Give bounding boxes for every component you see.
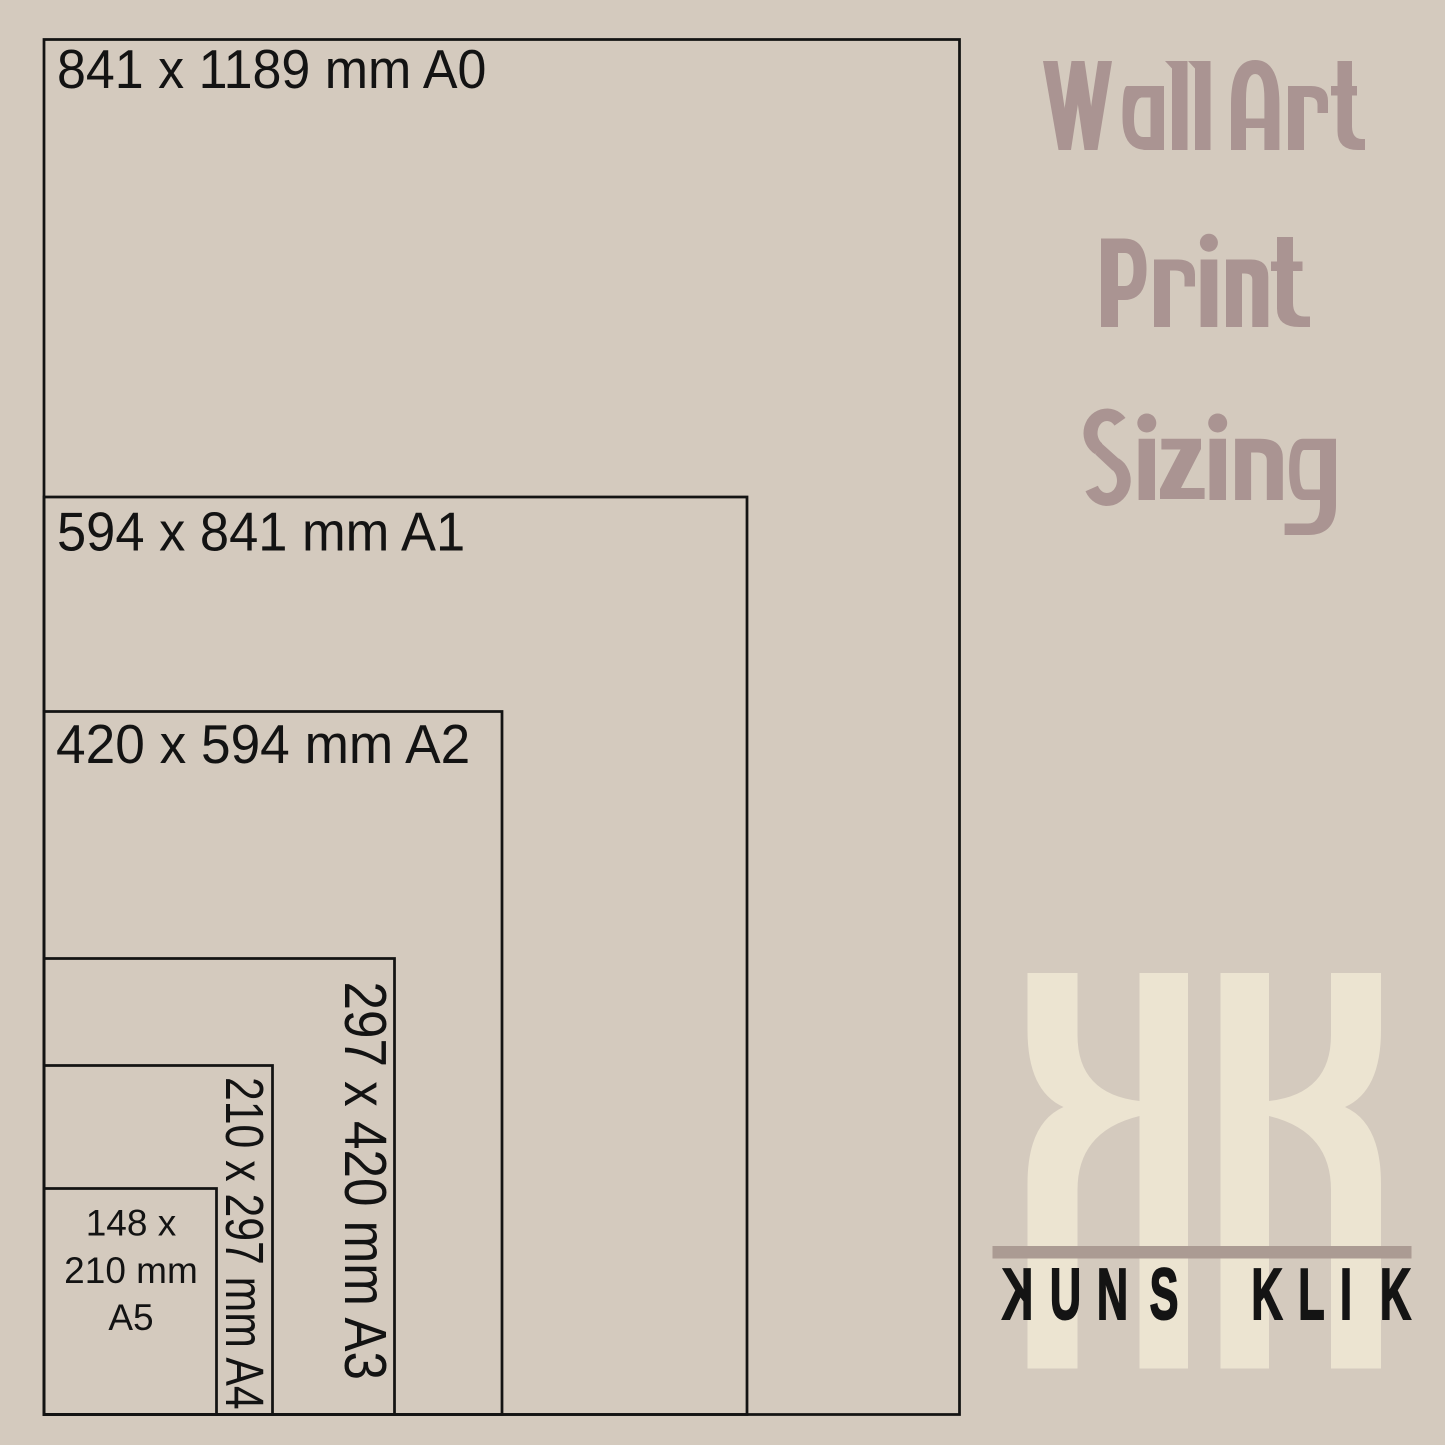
svg-text:148 x: 148 x	[86, 1203, 177, 1244]
svg-text:K: K	[1251, 1254, 1282, 1335]
svg-text:S: S	[1150, 1254, 1179, 1335]
svg-text:841 x 1189 mm A0: 841 x 1189 mm A0	[57, 40, 486, 101]
svg-text:297 x 420 mm A3: 297 x 420 mm A3	[332, 982, 398, 1380]
svg-text:420 x 594 mm A2: 420 x 594 mm A2	[56, 714, 470, 775]
svg-text:K: K	[1380, 1254, 1411, 1335]
svg-text:I: I	[1340, 1254, 1352, 1335]
svg-text:594 x 841 mm A1: 594 x 841 mm A1	[57, 501, 465, 562]
svg-text:210 mm: 210 mm	[64, 1250, 198, 1291]
svg-text:L: L	[1298, 1254, 1324, 1335]
svg-text:A5: A5	[108, 1297, 153, 1338]
svg-text:U: U	[1050, 1254, 1081, 1335]
svg-text:210 x 297 mm A4: 210 x 297 mm A4	[214, 1077, 274, 1410]
svg-text:N: N	[1097, 1254, 1128, 1335]
svg-text:K: K	[1002, 1254, 1033, 1335]
